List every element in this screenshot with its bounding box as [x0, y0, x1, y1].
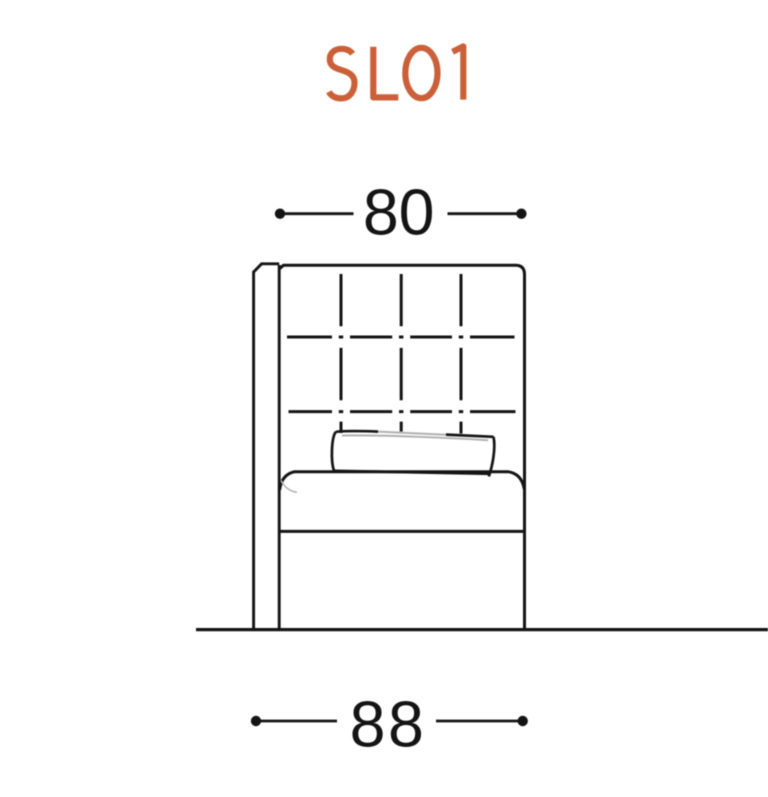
svg-text:88: 88 [350, 689, 427, 761]
svg-text:80: 80 [363, 176, 435, 248]
